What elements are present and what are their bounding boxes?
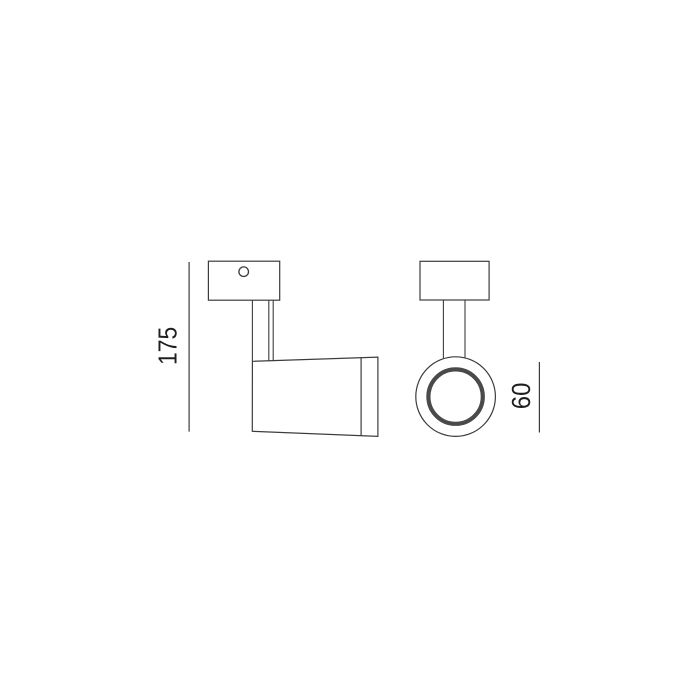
svg-text:60: 60 bbox=[508, 383, 536, 410]
svg-text:175: 175 bbox=[155, 327, 183, 365]
